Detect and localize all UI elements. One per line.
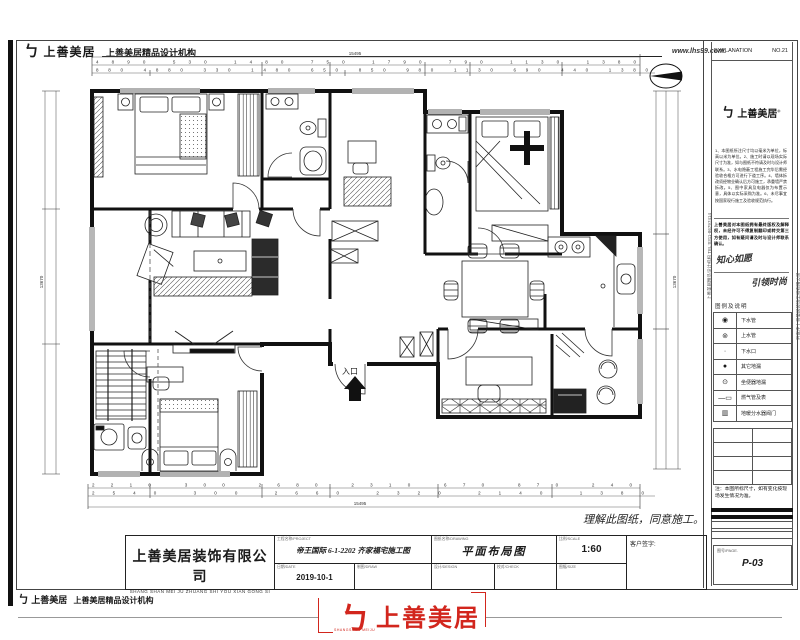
draw-cell: 制图/DRAW [354, 563, 431, 589]
checker-label: 校对/CHECK [497, 565, 519, 570]
company-cell: 上善美居装饰有限公司 SHANG SHAN MEI JU ZHUANG SHI … [126, 536, 274, 589]
master-bed [118, 94, 224, 174]
legend-label: 燃气管及表 [737, 394, 791, 401]
designer-cell: 设计/DESIGN [431, 563, 494, 589]
legend-title: 图例及说明 [715, 302, 748, 310]
legend-row: ◉下水管 [714, 313, 791, 329]
legend-row: —▭燃气管及表 [714, 391, 791, 407]
footer: ㄅ 上善美居 上善美居精品设计机构 ㄅ SHANGSHAN MEIJU 上善美居 [0, 588, 800, 640]
panel-logo: ㄅ 上善美居® [714, 102, 788, 121]
legend-row: ●其它地漏 [714, 360, 791, 376]
master-wardrobe [238, 94, 259, 176]
drain-outlet-icon: · [714, 344, 737, 359]
empty-grid [713, 428, 792, 485]
dim-bottom-row1: 2210 300 2680 2310 670 870 240 [92, 483, 632, 488]
laundry-balcony [94, 349, 146, 450]
drawing-name-label: 图纸名称/DRAWING [434, 537, 468, 542]
project-cell: 工程名称/PROJECT 帝王国际 6-1-2202 齐家福宅施工图 [274, 536, 431, 563]
dim-right-total: 13670 [672, 275, 677, 288]
panel-side-text-left: 上善美居精品设计机构 TEL:0311-86797414 [707, 213, 713, 300]
date-cell: 日期/DATE 2019-10-1 [274, 563, 354, 589]
drawing-sheet: { "header": {"mark":"ㄅ","brand":"上善美居","… [0, 0, 800, 640]
red-logo-subtext: SHANGSHAN MEIJU [334, 628, 375, 632]
foyer [330, 141, 391, 263]
date-value: 2019-10-1 [275, 573, 354, 582]
title-block: 上善美居装饰有限公司 SHANG SHAN MEI JU ZHUANG SHI … [125, 535, 707, 590]
company-name: 上善美居装饰有限公司 [126, 546, 274, 586]
panel-logo-text: 上善美居 [737, 109, 777, 120]
dim-top-row2: 880 4880 330 1480 650 850 980 1130 690 4… [96, 68, 648, 73]
dim-left [42, 91, 60, 474]
panel-side-text-right: 石家庄上善美居装饰工程有限公司 [796, 273, 800, 341]
toilet-drain-icon: ⊙ [714, 375, 737, 390]
signature-slogan-2: 引领时尚 [751, 274, 788, 289]
legend-label: 坐便器地漏 [737, 379, 791, 386]
drawing-name: 平面布局图 [432, 543, 556, 559]
kitchen [548, 236, 635, 327]
dim-left-total: 13670 [39, 275, 44, 288]
footer-agency: ㄅ 上善美居 上善美居精品设计机构 [18, 591, 153, 607]
manifold-valve-icon: ▥ [714, 406, 737, 421]
footer-brand-name: 上善美居 [31, 595, 67, 605]
panel-logo-tm: ® [777, 109, 780, 114]
bathroom-2 [425, 115, 468, 215]
binding-bar [8, 40, 13, 606]
panel-note: 注：本图所标尺寸，如有变化按现场发生情况为准。 [715, 486, 788, 500]
dining [444, 244, 544, 333]
signature-block: 知心如愿 引领时尚 [714, 250, 789, 290]
design-notes: 1、本图纸所注尺寸均以毫米为单位，标高以米为单位。2、施工时请以现场实际尺寸为准… [715, 148, 787, 204]
bathroom-1 [266, 94, 326, 175]
bedroom-3 [142, 349, 257, 471]
date-label: 日期/DATE [277, 565, 296, 570]
project-name: 帝王国际 6-1-2202 齐家福宅施工图 [275, 545, 431, 556]
logo-corner [318, 598, 333, 633]
page-number-cell: 图号/PAGE. P-03 [713, 545, 792, 585]
client-signature-label: 客户签字: [630, 539, 706, 548]
draw-label: 制图/DRAW [357, 565, 377, 570]
client-signature-cell: 客户签字: [626, 536, 706, 589]
dim-bottom-total: 15495 [354, 501, 367, 506]
water-pipe-icon: ⊚ [714, 329, 737, 344]
entry-label: 入口 [342, 367, 358, 376]
legend-label: 下水管 [737, 317, 791, 324]
panel-bars [711, 508, 793, 541]
legend-label: 下水口 [737, 348, 791, 355]
dim-bottom-row2: 2540 300 2660 2320 2140 1380 [92, 491, 644, 496]
panel-logo-mark-icon: ㄅ [722, 105, 735, 120]
signature-slogan-1: 知心如愿 [716, 251, 753, 266]
footer-agency-name: 上善美居精品设计机构 [73, 596, 153, 605]
size-cell: 图幅/SIZE [556, 563, 626, 589]
size-label: 图幅/SIZE [559, 565, 576, 570]
scale-label: 比例/SCALE [559, 537, 580, 542]
floor-plan: 15495 4890 530 1480 750 1790 790 1130 13… [20, 52, 700, 534]
dim-bottom [88, 484, 655, 509]
legend-label: 上水管 [737, 332, 791, 339]
legend-row: ·下水口 [714, 344, 791, 360]
drain-pipe-icon: ◉ [714, 313, 737, 328]
explanation-divider [711, 60, 793, 61]
legend-row: ⊚上水管 [714, 329, 791, 345]
explanation-panel: 上善美居精品设计机构 TEL:0311-86797414 石家庄上善美居装饰工程… [703, 40, 797, 588]
red-logo-text: 上善美居 [376, 598, 480, 633]
checker-cell: 校对/CHECK [494, 563, 556, 589]
legend-row: ▥地暖分水器阀门 [714, 406, 791, 422]
explanation-no: NO.21 [772, 48, 788, 54]
wall-hatch [94, 97, 103, 177]
footer-red-logo: ㄅ SHANGSHAN MEIJU 上善美居 [318, 592, 486, 636]
signature-line [714, 272, 789, 273]
tea-room [554, 333, 617, 413]
explanation-label: EXPLANATION [714, 48, 752, 54]
bedroom-2 [476, 117, 559, 241]
legend-label: 地暖分水器阀门 [737, 410, 791, 417]
handwritten-note: 理解此图纸，同意施工。 [583, 513, 700, 526]
north-arrow-icon [650, 64, 682, 88]
designer-label: 设计/DESIGN [434, 565, 457, 570]
dim-top-total: 15495 [349, 52, 362, 56]
dim-top-row1: 4890 530 1480 750 1790 790 1130 1380 [96, 60, 636, 65]
footer-brand-mark-icon: ㄅ [18, 594, 29, 606]
project-label: 工程名称/PROJECT [277, 537, 311, 542]
copyright-notice: 上善美居对本图纸拥有最终版权及解释权，未经许可不得复制翻印或转交第三方使用，如有… [714, 218, 789, 247]
page-number-label: 图号/PAGE. [717, 548, 738, 554]
gas-meter-icon: —▭ [714, 391, 737, 406]
drawing-name-cell: 图纸名称/DRAWING 平面布局图 [431, 536, 556, 563]
legend-table: ◉下水管 ⊚上水管 ·下水口 ●其它地漏 ⊙坐便器地漏 —▭燃气管及表 ▥地暖分… [713, 312, 792, 422]
living-room [137, 210, 278, 353]
floor-drain-icon: ● [714, 360, 737, 375]
page-number: P-03 [714, 558, 791, 569]
scale-cell: 比例/SCALE 1:60 [556, 536, 626, 563]
legend-row: ⊙坐便器地漏 [714, 375, 791, 391]
dim-top [92, 54, 655, 76]
legend-label: 其它地漏 [737, 363, 791, 370]
scale-value: 1:60 [557, 544, 626, 555]
entry-marker [344, 376, 366, 401]
